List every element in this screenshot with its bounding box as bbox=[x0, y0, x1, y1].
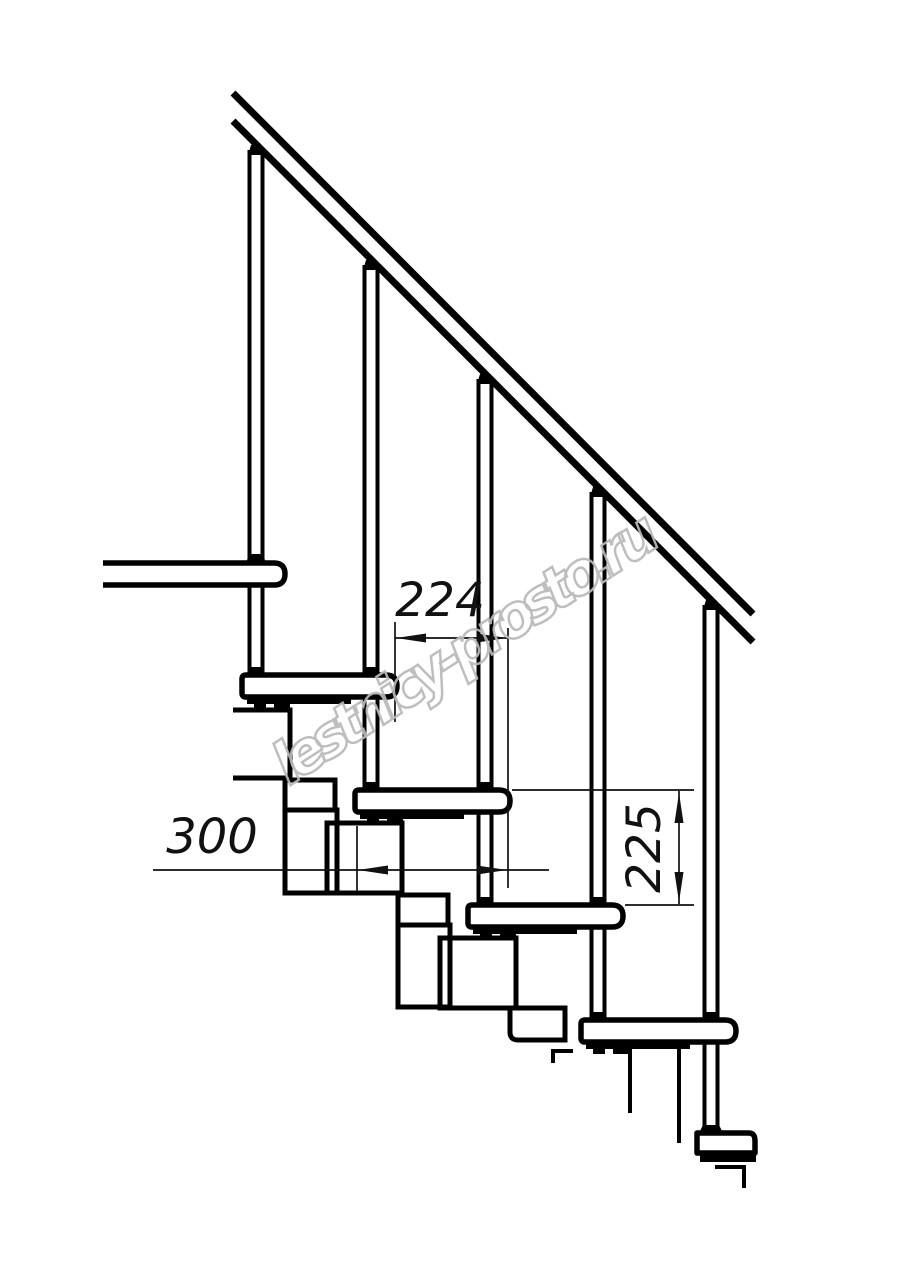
tread-3 bbox=[355, 790, 510, 812]
tread-mount-band bbox=[700, 1153, 756, 1162]
baluster-2 bbox=[365, 267, 378, 790]
stringer-cut-line bbox=[553, 1051, 573, 1063]
mount-tab bbox=[613, 1049, 629, 1054]
dimension-value-depth: 300 bbox=[166, 809, 258, 865]
mount-tab bbox=[593, 1049, 605, 1054]
dimension-value-run: 224 bbox=[395, 573, 485, 628]
stringer-chain bbox=[233, 710, 565, 1040]
arrowhead-icon bbox=[675, 793, 684, 823]
stringer-module bbox=[233, 710, 290, 778]
baluster-4 bbox=[592, 494, 605, 1020]
tread-mount-band bbox=[360, 811, 464, 819]
bottom-step-edge bbox=[715, 1167, 744, 1188]
arrowhead-icon bbox=[358, 866, 388, 875]
baluster-5 bbox=[705, 607, 718, 1133]
stringer-module bbox=[510, 1008, 565, 1040]
stringer-cut-lines bbox=[553, 1047, 679, 1143]
tread-2 bbox=[242, 675, 397, 697]
staircase-diagram: 224 300 225 bbox=[0, 0, 914, 1280]
baluster-3 bbox=[479, 381, 492, 905]
arrowhead-icon bbox=[675, 872, 684, 902]
collar-icon bbox=[699, 1125, 723, 1133]
baluster-1 bbox=[250, 152, 263, 675]
arrowhead-icon bbox=[396, 634, 426, 643]
tread-landing bbox=[103, 563, 285, 585]
stringer-module bbox=[285, 780, 335, 810]
staircase-drawing: 224 300 225 lestnicy-prosto.ru bbox=[0, 0, 914, 1280]
dimension-value-rise: 225 bbox=[617, 803, 672, 893]
balusters bbox=[250, 152, 718, 1133]
stringer-module bbox=[398, 895, 448, 925]
tread-4 bbox=[468, 905, 623, 927]
tread-5 bbox=[581, 1020, 736, 1042]
tread-6 bbox=[697, 1133, 755, 1153]
tread-mount-band bbox=[473, 926, 577, 934]
tread-mount-band bbox=[586, 1041, 690, 1049]
tread-mount-band bbox=[247, 696, 351, 704]
